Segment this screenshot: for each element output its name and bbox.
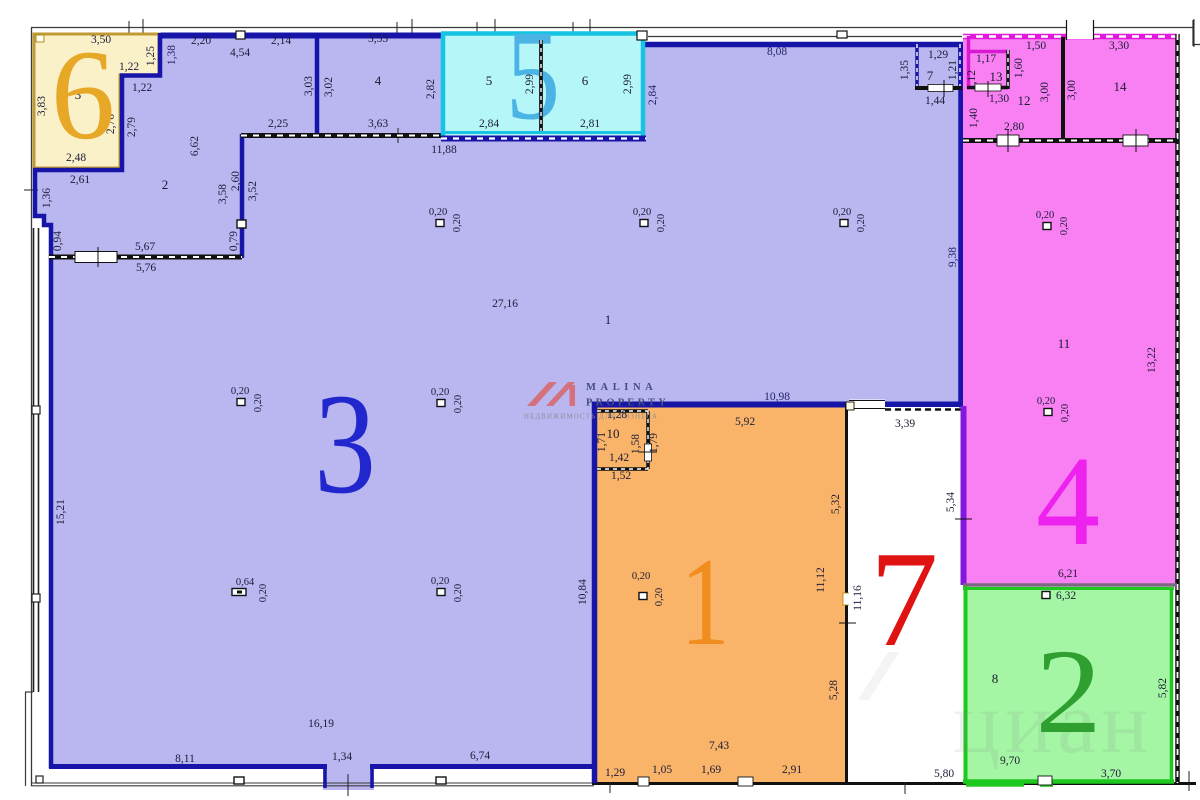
svg-text:3,03: 3,03 xyxy=(303,76,315,96)
svg-text:5: 5 xyxy=(486,73,493,88)
svg-text:0,20: 0,20 xyxy=(656,214,667,232)
svg-text:10: 10 xyxy=(607,426,620,441)
svg-text:8: 8 xyxy=(992,671,999,686)
svg-text:2,20: 2,20 xyxy=(191,35,211,47)
svg-text:5,28: 5,28 xyxy=(828,680,840,700)
svg-text:27,16: 27,16 xyxy=(492,298,518,310)
svg-text:1,22: 1,22 xyxy=(132,82,152,94)
svg-text:1,17: 1,17 xyxy=(976,53,996,65)
svg-text:5,32: 5,32 xyxy=(830,494,842,514)
svg-text:2,99: 2,99 xyxy=(622,74,634,94)
svg-text:0,20: 0,20 xyxy=(654,588,665,606)
svg-text:3,58: 3,58 xyxy=(217,184,229,204)
svg-text:3,00: 3,00 xyxy=(1066,80,1078,100)
svg-text:7: 7 xyxy=(927,68,934,83)
svg-text:7: 7 xyxy=(870,523,939,675)
svg-text:5,67: 5,67 xyxy=(135,241,155,253)
svg-text:1,50: 1,50 xyxy=(1026,40,1046,52)
svg-text:1,22: 1,22 xyxy=(119,61,139,73)
svg-text:6,62: 6,62 xyxy=(189,136,201,156)
svg-text:1,29: 1,29 xyxy=(928,49,948,61)
svg-text:3: 3 xyxy=(314,364,376,524)
svg-text:1,28: 1,28 xyxy=(607,409,627,421)
svg-text:5,34: 5,34 xyxy=(945,492,957,512)
svg-text:НЕДВИЖИМОСТЬ ДЛЯ БИЗНЕСА: НЕДВИЖИМОСТЬ ДЛЯ БИЗНЕСА xyxy=(524,414,658,421)
svg-text:11,16: 11,16 xyxy=(852,585,864,611)
svg-text:0,20: 0,20 xyxy=(253,394,264,412)
svg-text:4: 4 xyxy=(1036,430,1100,572)
svg-text:0,20: 0,20 xyxy=(1036,210,1054,221)
svg-text:2,82: 2,82 xyxy=(425,79,437,99)
svg-text:0,94: 0,94 xyxy=(52,231,64,251)
svg-text:3,83: 3,83 xyxy=(36,96,48,116)
svg-text:3,63: 3,63 xyxy=(368,118,388,130)
svg-text:3,52: 3,52 xyxy=(247,181,259,201)
svg-text:2: 2 xyxy=(162,177,169,192)
svg-text:2,60: 2,60 xyxy=(230,171,242,191)
svg-text:6,32: 6,32 xyxy=(1056,590,1076,602)
svg-text:1,44: 1,44 xyxy=(925,95,945,107)
svg-text:3,02: 3,02 xyxy=(323,77,335,97)
svg-text:5,92: 5,92 xyxy=(735,416,755,428)
svg-text:4: 4 xyxy=(375,73,382,88)
svg-text:1,38: 1,38 xyxy=(166,45,178,65)
svg-text:4,54: 4,54 xyxy=(230,47,250,59)
svg-text:2,84: 2,84 xyxy=(479,118,499,130)
svg-text:6: 6 xyxy=(582,73,589,88)
svg-text:15,21: 15,21 xyxy=(55,499,67,525)
svg-text:0,20: 0,20 xyxy=(453,395,464,413)
svg-text:1,52: 1,52 xyxy=(611,470,631,482)
svg-text:MALINA: MALINA xyxy=(586,382,657,393)
svg-text:1: 1 xyxy=(605,312,612,327)
svg-text:10,84: 10,84 xyxy=(577,579,589,605)
svg-text:1,29: 1,29 xyxy=(605,767,625,779)
svg-text:10,98: 10,98 xyxy=(764,391,790,403)
svg-text:2,84: 2,84 xyxy=(647,85,659,105)
svg-text:PROPERTY: PROPERTY xyxy=(586,398,669,409)
svg-text:0,20: 0,20 xyxy=(833,207,851,218)
svg-text:2: 2 xyxy=(1035,625,1102,759)
svg-text:2,80: 2,80 xyxy=(1004,121,1024,133)
svg-text:0,20: 0,20 xyxy=(258,584,269,602)
svg-text:0,20: 0,20 xyxy=(431,576,449,587)
svg-text:0,64: 0,64 xyxy=(236,577,255,588)
svg-text:0,20: 0,20 xyxy=(452,214,463,232)
svg-text:1: 1 xyxy=(680,532,729,671)
svg-text:8,08: 8,08 xyxy=(767,46,787,58)
svg-text:0,20: 0,20 xyxy=(633,207,651,218)
svg-text:9,70: 9,70 xyxy=(1000,755,1020,767)
svg-text:0,20: 0,20 xyxy=(1037,396,1055,407)
svg-text:1,34: 1,34 xyxy=(332,751,352,763)
svg-text:12: 12 xyxy=(1018,93,1031,108)
svg-text:11,88: 11,88 xyxy=(431,144,457,156)
svg-text:0,20: 0,20 xyxy=(431,387,449,398)
svg-text:1,79: 1,79 xyxy=(648,433,660,453)
svg-text:1,21: 1,21 xyxy=(947,60,959,80)
svg-text:5,82: 5,82 xyxy=(1157,678,1169,698)
svg-text:11,12: 11,12 xyxy=(815,567,827,593)
svg-text:1,69: 1,69 xyxy=(701,764,721,776)
svg-text:5,80: 5,80 xyxy=(934,768,954,780)
svg-text:2,91: 2,91 xyxy=(782,764,802,776)
svg-text:1,25: 1,25 xyxy=(145,46,157,66)
svg-text:0,20: 0,20 xyxy=(429,207,447,218)
svg-text:2,79: 2,79 xyxy=(126,117,138,137)
svg-text:2,14: 2,14 xyxy=(271,35,291,47)
svg-text:0,20: 0,20 xyxy=(231,386,249,397)
svg-text:13: 13 xyxy=(990,69,1003,84)
svg-text:8,11: 8,11 xyxy=(175,753,195,765)
svg-text:1,12: 1,12 xyxy=(966,70,978,90)
svg-text:0,20: 0,20 xyxy=(453,584,464,602)
svg-text:2,81: 2,81 xyxy=(580,118,600,130)
svg-text:1,60: 1,60 xyxy=(1013,58,1025,78)
svg-text:7,43: 7,43 xyxy=(709,740,729,752)
svg-text:5: 5 xyxy=(506,4,560,146)
svg-text:3,53: 3,53 xyxy=(368,33,388,45)
svg-text:3,39: 3,39 xyxy=(895,418,915,430)
svg-text:1,36: 1,36 xyxy=(41,188,53,208)
svg-text:2,61: 2,61 xyxy=(70,174,90,186)
svg-text:3,30: 3,30 xyxy=(1109,40,1129,52)
svg-text:14: 14 xyxy=(1114,79,1128,94)
svg-text:1,05: 1,05 xyxy=(652,764,672,776)
svg-text:11: 11 xyxy=(1058,336,1071,351)
svg-text:2,25: 2,25 xyxy=(268,118,288,130)
svg-text:1,58: 1,58 xyxy=(630,434,642,454)
svg-text:0,20: 0,20 xyxy=(856,214,867,232)
svg-text:13,22: 13,22 xyxy=(1146,347,1158,373)
svg-text:1,40: 1,40 xyxy=(968,108,980,128)
svg-text:1,42: 1,42 xyxy=(609,452,629,464)
svg-text:3,70: 3,70 xyxy=(1101,768,1121,780)
svg-text:1,35: 1,35 xyxy=(899,60,911,80)
svg-text:0,20: 0,20 xyxy=(632,571,650,582)
svg-text:0,79: 0,79 xyxy=(228,231,240,251)
svg-text:5,76: 5,76 xyxy=(136,262,156,274)
svg-text:3,00: 3,00 xyxy=(1039,82,1051,102)
svg-text:0,20: 0,20 xyxy=(1060,404,1071,422)
svg-text:16,19: 16,19 xyxy=(308,718,334,730)
svg-text:0,20: 0,20 xyxy=(1059,217,1070,235)
svg-text:6: 6 xyxy=(51,23,116,166)
svg-text:9,38: 9,38 xyxy=(947,247,959,267)
svg-text:6,74: 6,74 xyxy=(470,750,490,762)
svg-text:1,30: 1,30 xyxy=(989,93,1009,105)
